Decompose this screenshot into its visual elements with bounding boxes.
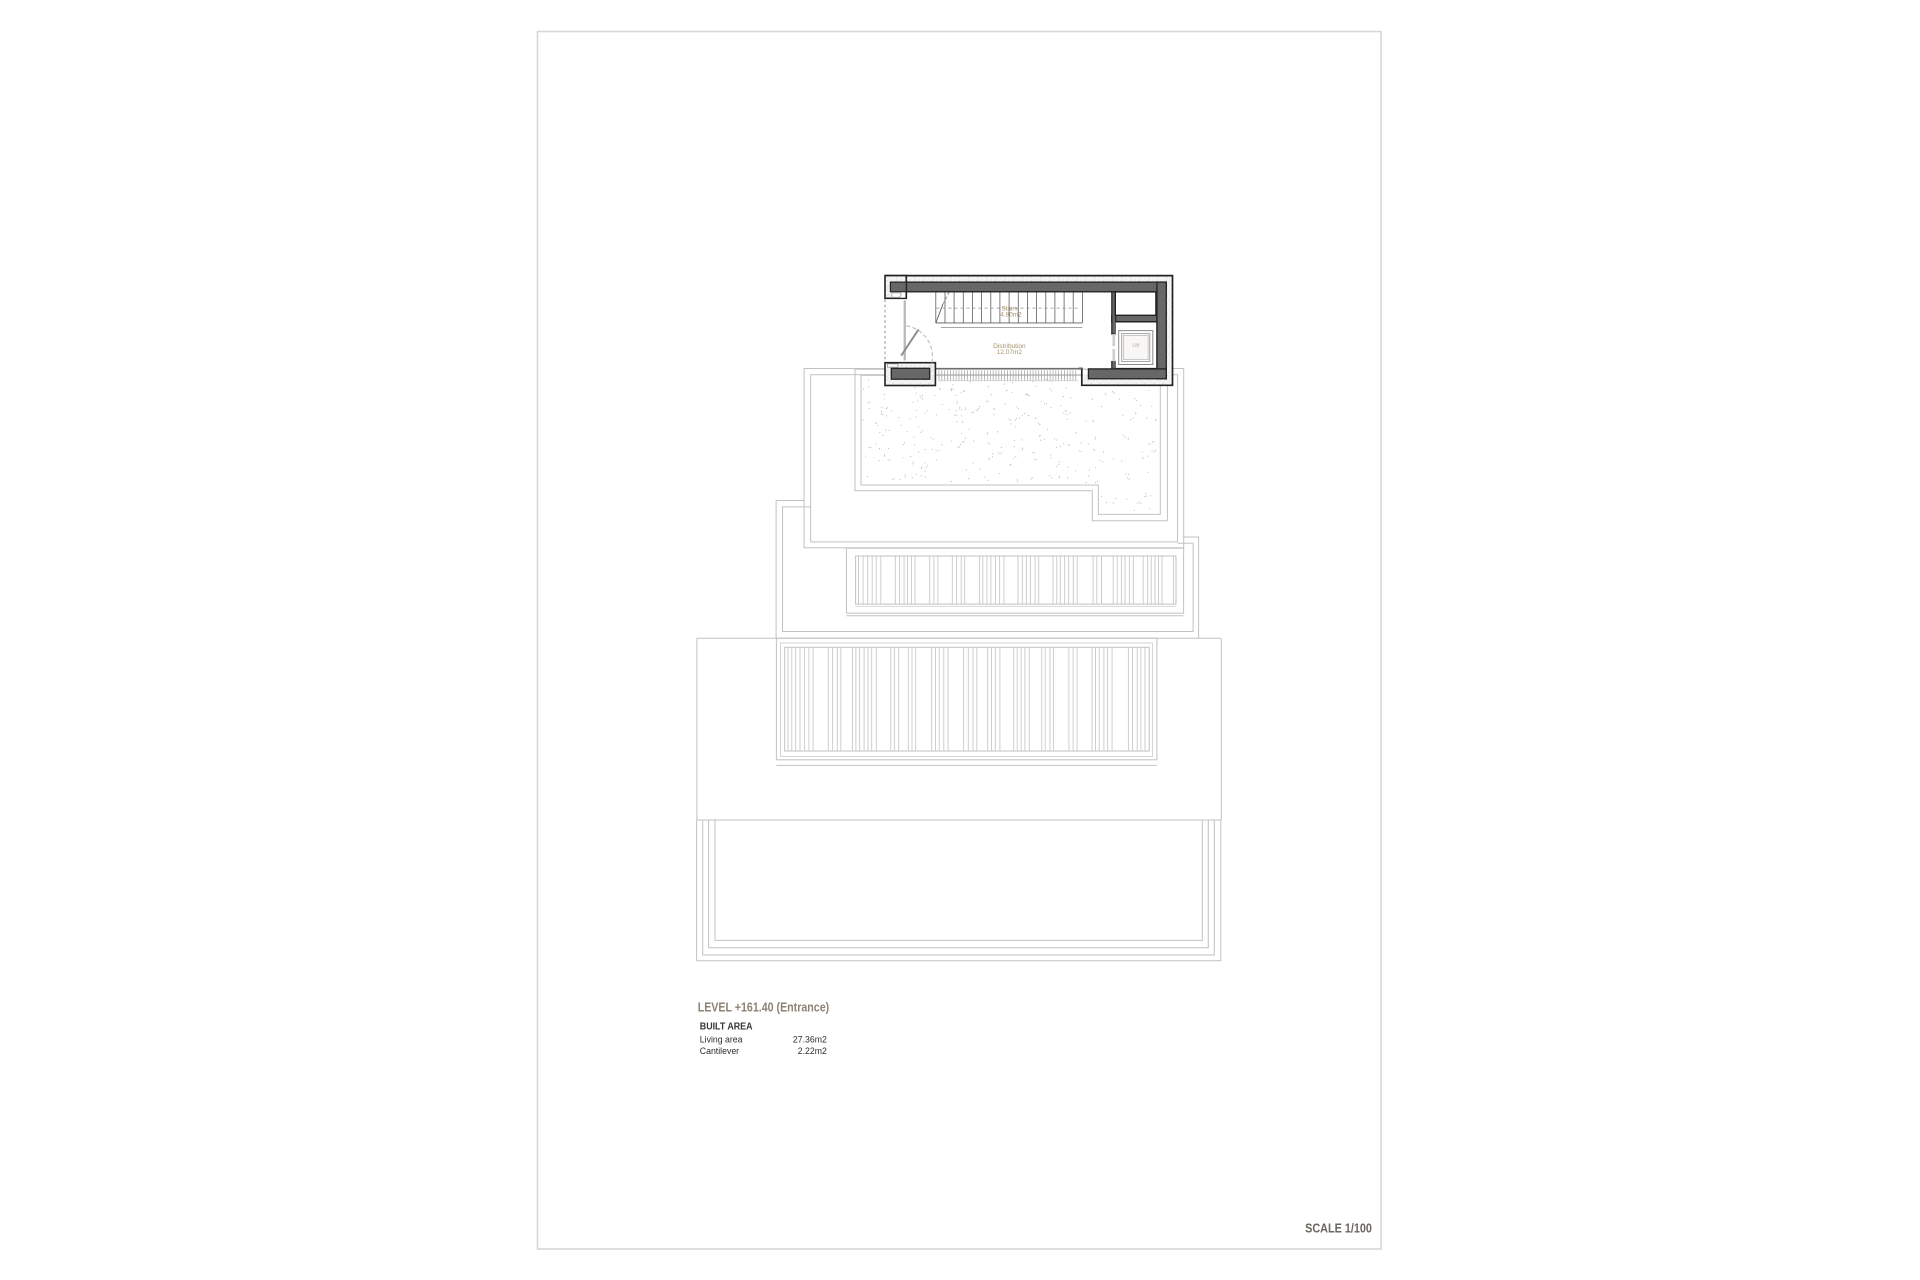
svg-text:SCALE 1/100: SCALE 1/100 [1305, 1222, 1372, 1236]
svg-text:4.80m2: 4.80m2 [1000, 311, 1022, 318]
svg-text:LEVEL +161.40 (Entrance): LEVEL +161.40 (Entrance) [698, 999, 830, 1014]
svg-text:Living area: Living area [700, 1034, 744, 1044]
svg-text:BUILT AREA: BUILT AREA [700, 1021, 753, 1033]
svg-text:2.22m2: 2.22m2 [798, 1046, 827, 1056]
svg-text:Cantilever: Cantilever [700, 1046, 739, 1056]
svg-text:Lift: Lift [1132, 343, 1139, 349]
svg-text:27.36m2: 27.36m2 [793, 1034, 827, 1044]
svg-text:12.07m2: 12.07m2 [997, 349, 1023, 356]
